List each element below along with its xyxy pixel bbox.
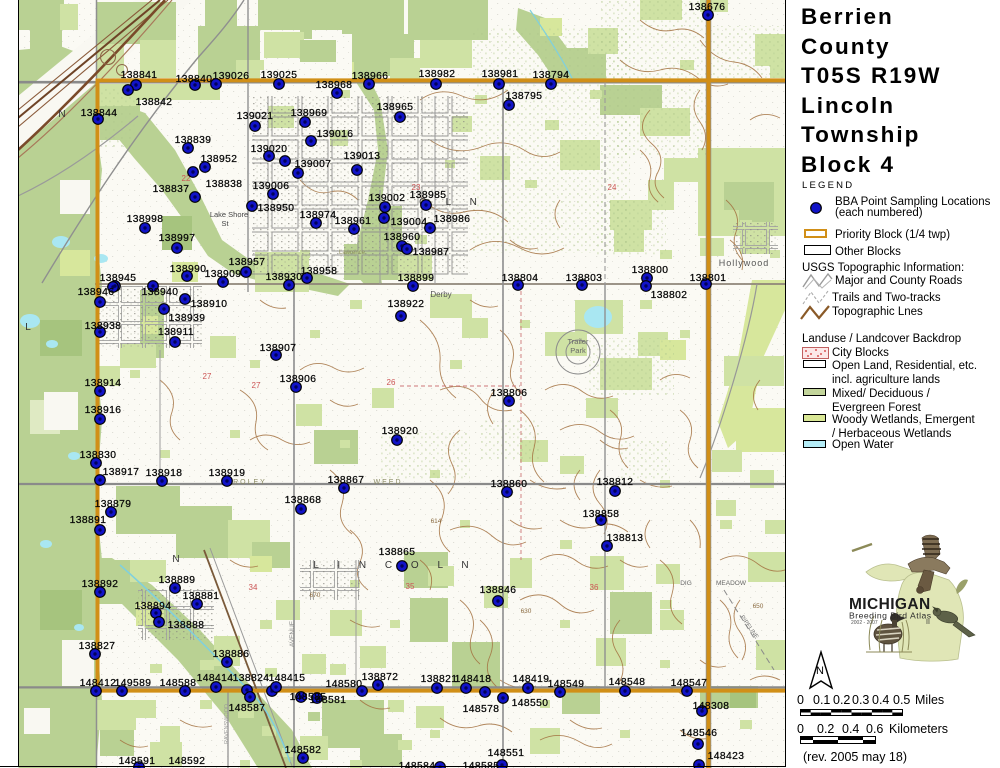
svg-text:148587: 148587 <box>229 703 266 714</box>
svg-text:138879: 138879 <box>95 499 132 510</box>
svg-text:138891: 138891 <box>70 515 107 526</box>
svg-text:138939: 138939 <box>169 313 206 324</box>
svg-text:148582: 148582 <box>285 745 322 756</box>
svg-text:148418: 148418 <box>455 674 492 685</box>
svg-text:34: 34 <box>249 583 258 592</box>
svg-text:139007: 139007 <box>295 159 332 170</box>
svg-text:138958: 138958 <box>301 266 338 277</box>
svg-text:148551: 148551 <box>488 748 525 759</box>
svg-text:26: 26 <box>387 378 396 387</box>
svg-text:138844: 138844 <box>81 108 118 119</box>
svg-text:L: L <box>25 322 31 333</box>
svg-text:138812: 138812 <box>597 477 634 488</box>
svg-text:138821: 138821 <box>421 674 458 685</box>
svg-text:138889: 138889 <box>159 575 196 586</box>
svg-text:N: N <box>58 109 65 120</box>
svg-text:138950: 138950 <box>258 203 295 214</box>
svg-text:148581: 148581 <box>310 695 347 706</box>
svg-text:138916: 138916 <box>85 405 122 416</box>
svg-text:138981: 138981 <box>482 69 519 80</box>
svg-text:139020: 139020 <box>251 144 288 155</box>
svg-text:AVENUE: AVENUE <box>289 620 296 647</box>
svg-text:138794: 138794 <box>533 70 570 81</box>
svg-text:138919: 138919 <box>209 468 246 479</box>
svg-text:138917: 138917 <box>103 467 140 478</box>
svg-text:139004: 139004 <box>391 217 428 228</box>
svg-text:138914: 138914 <box>85 378 122 389</box>
svg-text:148412: 148412 <box>80 678 117 689</box>
svg-text:138865: 138865 <box>379 547 416 558</box>
svg-text:138998: 138998 <box>127 214 164 225</box>
svg-text:138945: 138945 <box>100 273 137 284</box>
svg-text:138868: 138868 <box>285 495 322 506</box>
svg-text:148591: 148591 <box>119 756 156 767</box>
svg-text:138985: 138985 <box>410 190 447 201</box>
svg-text:138990: 138990 <box>170 264 207 275</box>
svg-text:2002 - 2007: 2002 - 2007 <box>851 620 878 626</box>
svg-text:149589: 149589 <box>115 678 152 689</box>
svg-text:138800: 138800 <box>632 265 669 276</box>
svg-text:138906: 138906 <box>280 374 317 385</box>
svg-text:St: St <box>221 219 229 228</box>
svg-text:138881: 138881 <box>183 591 220 602</box>
svg-text:138842: 138842 <box>136 97 173 108</box>
svg-text:138952: 138952 <box>201 154 238 165</box>
svg-text:138824: 138824 <box>233 673 270 684</box>
svg-text:138795: 138795 <box>506 91 543 102</box>
svg-text:148423: 148423 <box>708 751 745 762</box>
svg-text:139002: 139002 <box>369 193 406 204</box>
svg-text:138965: 138965 <box>377 102 414 113</box>
svg-text:650: 650 <box>753 603 764 610</box>
svg-text:148580: 148580 <box>326 679 363 690</box>
svg-text:II: II <box>926 619 930 626</box>
svg-text:139013: 139013 <box>344 151 381 162</box>
svg-text:148547: 148547 <box>671 678 708 689</box>
svg-text:138930: 138930 <box>266 272 303 283</box>
svg-text:138966: 138966 <box>352 71 389 82</box>
svg-text:138968: 138968 <box>316 80 353 91</box>
svg-text:35: 35 <box>406 582 415 591</box>
svg-text:138872: 138872 <box>362 672 399 683</box>
svg-text:Trailer: Trailer <box>568 337 589 346</box>
svg-text:138894: 138894 <box>135 601 172 612</box>
svg-text:138910: 138910 <box>191 299 228 310</box>
svg-text:138920: 138920 <box>382 426 419 437</box>
svg-text:138899: 138899 <box>398 273 435 284</box>
svg-text:138918: 138918 <box>146 468 183 479</box>
svg-text:N: N <box>816 665 824 677</box>
svg-text:DIG: DIG <box>680 580 692 587</box>
svg-text:Park: Park <box>570 346 586 355</box>
svg-text:Hollywood: Hollywood <box>719 258 770 268</box>
svg-text:138886: 138886 <box>213 649 250 660</box>
svg-text:138839: 138839 <box>175 135 212 146</box>
svg-text:Derby: Derby <box>430 290 451 299</box>
svg-text:148549: 148549 <box>548 679 585 690</box>
svg-text:138801: 138801 <box>690 273 727 284</box>
svg-text:138802: 138802 <box>651 290 688 301</box>
svg-text:138803: 138803 <box>566 273 603 284</box>
svg-text:139026: 139026 <box>213 71 250 82</box>
svg-text:148308: 148308 <box>693 701 730 712</box>
svg-text:148550: 148550 <box>512 698 549 709</box>
svg-text:139025: 139025 <box>261 70 298 81</box>
svg-text:148588: 148588 <box>160 678 197 689</box>
svg-text:138806: 138806 <box>491 388 528 399</box>
svg-text:138804: 138804 <box>502 273 539 284</box>
svg-text:138987: 138987 <box>413 247 450 258</box>
svg-text:138938: 138938 <box>85 321 122 332</box>
svg-text:N: N <box>172 554 179 565</box>
svg-text:138888: 138888 <box>168 620 205 631</box>
svg-text:138982: 138982 <box>419 69 456 80</box>
svg-text:MEADOW: MEADOW <box>716 580 747 587</box>
svg-text:148578: 148578 <box>463 704 500 715</box>
svg-text:670: 670 <box>310 592 321 599</box>
svg-text:138969: 138969 <box>291 108 328 119</box>
svg-text:148592: 148592 <box>169 756 206 767</box>
svg-text:138986: 138986 <box>434 214 471 225</box>
svg-text:138960: 138960 <box>384 232 421 243</box>
svg-text:Lake Shore: Lake Shore <box>210 210 248 219</box>
svg-text:27: 27 <box>203 372 212 381</box>
svg-text:138957: 138957 <box>229 257 266 268</box>
svg-text:138974: 138974 <box>300 210 337 221</box>
svg-text:139021: 139021 <box>237 111 274 122</box>
svg-text:138838: 138838 <box>206 179 243 190</box>
svg-text:148546: 148546 <box>681 728 718 739</box>
svg-text:138840: 138840 <box>176 74 213 85</box>
svg-text:138827: 138827 <box>79 641 116 652</box>
svg-text:614: 614 <box>431 518 442 525</box>
svg-text:L I N C O L N: L I N C O L N <box>313 560 476 571</box>
svg-text:138961: 138961 <box>335 216 372 227</box>
svg-text:138846: 138846 <box>480 585 517 596</box>
svg-text:24: 24 <box>608 183 617 192</box>
svg-text:36: 36 <box>590 583 599 592</box>
svg-text:138830: 138830 <box>80 450 117 461</box>
svg-text:630: 630 <box>521 608 532 615</box>
svg-text:138907: 138907 <box>260 343 297 354</box>
svg-text:148419: 148419 <box>513 674 550 685</box>
svg-text:138946: 138946 <box>78 287 115 298</box>
svg-text:138837: 138837 <box>153 184 190 195</box>
svg-text:138911: 138911 <box>158 327 194 338</box>
svg-text:138841: 138841 <box>121 70 158 81</box>
svg-text:138997: 138997 <box>159 233 196 244</box>
svg-text:Breeding Bird Atlas: Breeding Bird Atlas <box>849 611 932 621</box>
svg-text:148548: 148548 <box>609 677 646 688</box>
svg-text:148415: 148415 <box>269 673 306 684</box>
svg-text:138892: 138892 <box>82 579 119 590</box>
svg-text:138867: 138867 <box>328 475 365 486</box>
svg-text:139006: 139006 <box>253 181 290 192</box>
svg-text:139016: 139016 <box>317 129 354 140</box>
svg-text:WEED: WEED <box>374 479 403 486</box>
svg-text:138922: 138922 <box>388 299 425 310</box>
svg-text:27: 27 <box>252 381 261 390</box>
svg-text:138860: 138860 <box>491 479 528 490</box>
svg-text:138676: 138676 <box>689 2 726 13</box>
svg-text:ROLEY: ROLEY <box>233 479 267 486</box>
svg-text:Lawrence: Lawrence <box>339 250 366 256</box>
svg-text:138909: 138909 <box>205 269 242 280</box>
svg-text:148414: 148414 <box>197 673 234 684</box>
svg-text:138940: 138940 <box>142 287 179 298</box>
svg-text:138813: 138813 <box>607 533 644 544</box>
svg-text:138858: 138858 <box>583 509 620 520</box>
